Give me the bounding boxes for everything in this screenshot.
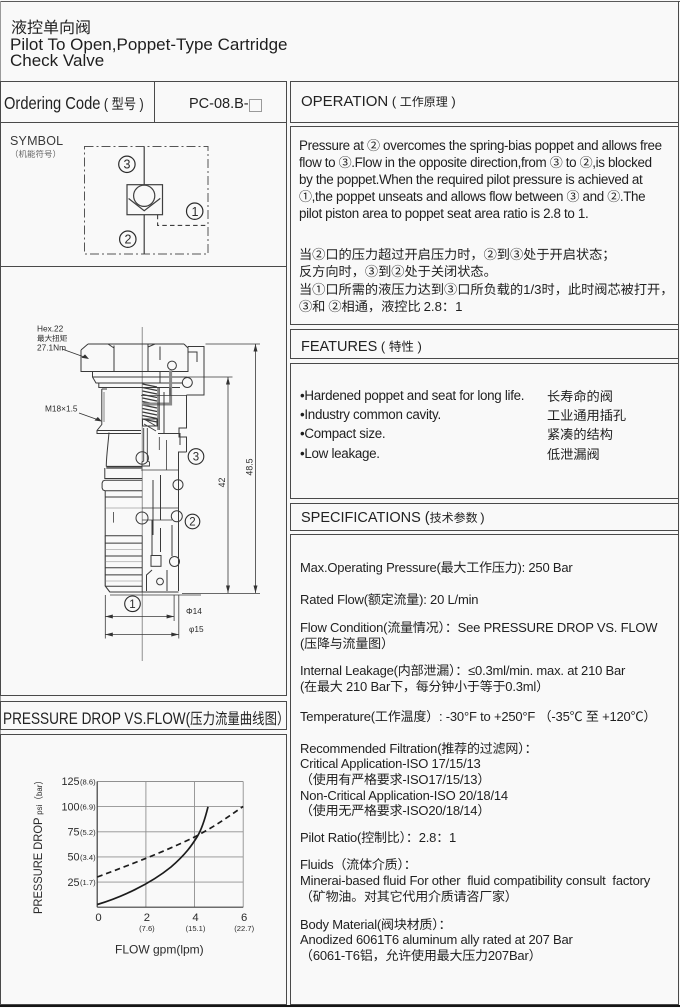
svg-text:4: 4	[192, 912, 198, 924]
svg-text:(8.6): (8.6)	[80, 778, 96, 787]
svg-text:(5.2): (5.2)	[80, 828, 96, 837]
svg-text:1: 1	[129, 599, 135, 611]
svg-text:50: 50	[67, 852, 79, 864]
svg-text:3: 3	[124, 158, 131, 172]
svg-text:25: 25	[67, 877, 79, 889]
svg-text:(7.6): (7.6)	[139, 924, 155, 933]
svg-text:φ15: φ15	[189, 624, 204, 634]
svg-text:Hex.22: Hex.22	[37, 324, 64, 334]
svg-text:(15.1): (15.1)	[186, 924, 206, 933]
svg-text:2: 2	[144, 912, 150, 924]
svg-text:42: 42	[217, 478, 227, 488]
svg-text:1: 1	[192, 205, 199, 219]
svg-text:2: 2	[125, 233, 132, 247]
svg-text:PRESSURE DROP psi（bar）: PRESSURE DROP psi（bar）	[31, 776, 45, 914]
svg-text:(22.7): (22.7)	[234, 924, 254, 933]
svg-text:2: 2	[189, 517, 195, 529]
svg-text:3: 3	[193, 452, 199, 464]
svg-text:48.5: 48.5	[245, 458, 255, 475]
svg-text:75: 75	[67, 827, 79, 839]
svg-text:0: 0	[95, 912, 101, 924]
svg-text:M18×1.5: M18×1.5	[45, 404, 78, 414]
svg-text:FLOW gpm(lpm): FLOW gpm(lpm)	[115, 943, 204, 957]
svg-text:6: 6	[241, 912, 247, 924]
svg-text:125: 125	[61, 776, 79, 788]
svg-text:(3.4): (3.4)	[80, 853, 96, 862]
svg-text:Φ14: Φ14	[186, 606, 202, 616]
svg-text:27.1Nm: 27.1Nm	[37, 343, 66, 353]
svg-text:100: 100	[61, 801, 79, 813]
svg-text:(6.9): (6.9)	[80, 803, 96, 812]
svg-text:(1.7): (1.7)	[80, 878, 96, 887]
